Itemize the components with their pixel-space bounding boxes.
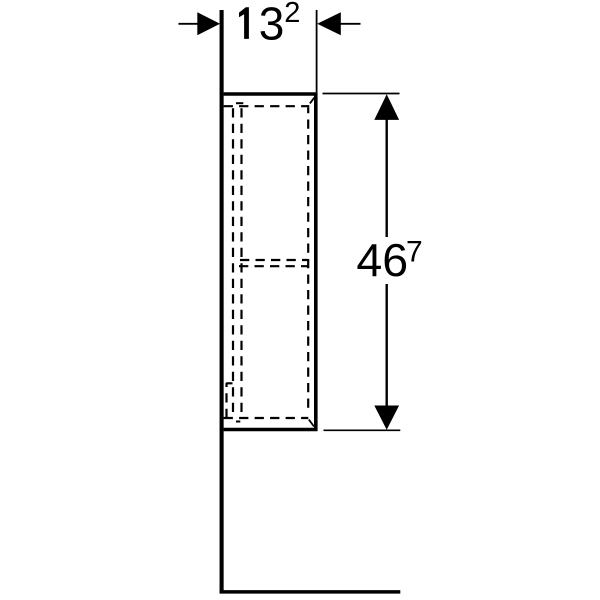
svg-text:3: 3 <box>259 0 285 49</box>
svg-text:46: 46 <box>356 234 408 286</box>
svg-text:2: 2 <box>284 0 300 29</box>
svg-text:7: 7 <box>406 235 423 268</box>
